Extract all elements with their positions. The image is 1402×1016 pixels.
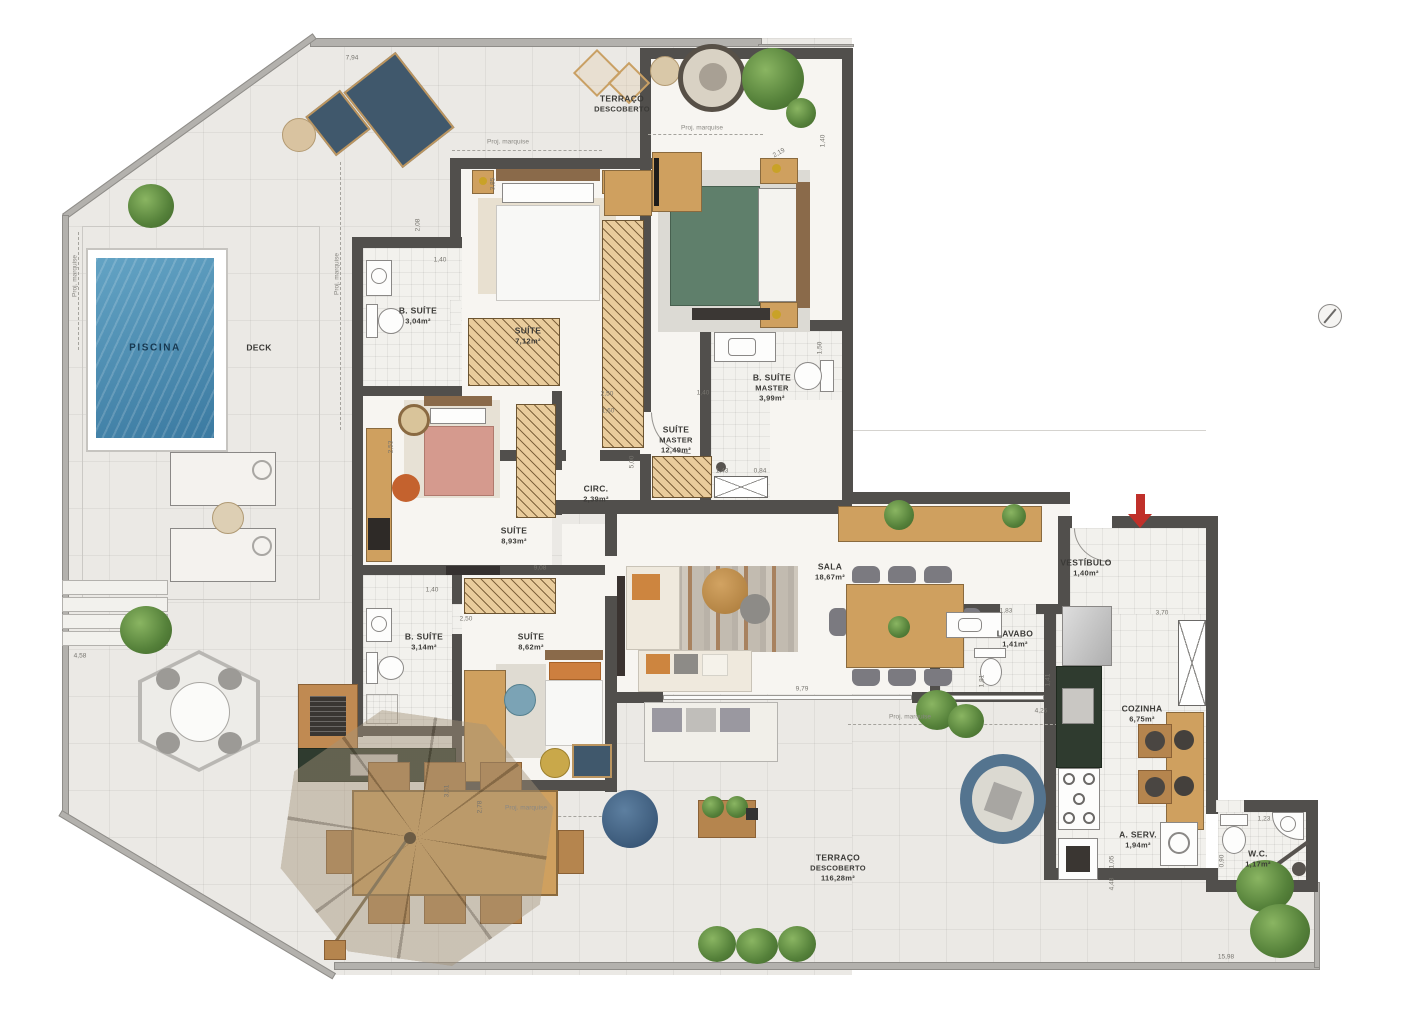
sala-glass-door xyxy=(663,695,912,700)
wall xyxy=(1044,604,1056,880)
burner-center xyxy=(1073,793,1085,805)
room-label: A. SERV.1,94m² xyxy=(1119,830,1157,851)
marquise-label: Proj. marquise xyxy=(889,714,931,721)
gazebo-chair xyxy=(156,732,180,754)
lamp xyxy=(479,177,487,185)
burner xyxy=(1083,812,1095,824)
pot xyxy=(746,808,758,820)
marquise-line xyxy=(452,150,602,151)
marquise-label: Proj. marquise xyxy=(681,125,723,132)
room-label: CIRC.2,39m² xyxy=(583,484,609,505)
room-label: W.C.1,17m² xyxy=(1245,849,1271,870)
dimension-label: 1,50 xyxy=(817,342,824,355)
entrance-arrow-icon xyxy=(1136,494,1145,514)
dimension-label: 3,85 xyxy=(490,178,497,191)
room-label: SUÍTE8,93m² xyxy=(501,526,528,547)
bed-headboard xyxy=(424,396,492,406)
sofa-cushion-orange xyxy=(632,574,660,600)
sala-glass-door-2 xyxy=(944,695,1044,700)
wardrobe xyxy=(652,456,712,498)
wall xyxy=(1206,516,1218,814)
bush xyxy=(778,926,816,962)
bed-headboard xyxy=(545,650,603,660)
wardrobe xyxy=(464,578,556,614)
door-gap-wc xyxy=(1216,800,1244,812)
wall xyxy=(1306,800,1318,892)
bed-bench xyxy=(692,308,770,320)
dimension-label: 1,41 xyxy=(1045,674,1052,687)
umbrella-pole xyxy=(404,832,416,844)
pouf xyxy=(650,56,680,86)
outdoor-cushion xyxy=(720,708,750,732)
toilet-tank xyxy=(366,652,378,684)
dining-chair xyxy=(888,566,916,583)
plant-small xyxy=(786,98,816,128)
fridge xyxy=(1062,606,1112,666)
marquise-label: Proj. marquise xyxy=(487,139,529,146)
dimension-label: 1,05 xyxy=(1109,856,1116,869)
plant xyxy=(948,704,984,738)
shower-head xyxy=(1292,862,1306,876)
room-label: SALA18,67m² xyxy=(815,562,845,583)
dining-chair xyxy=(852,566,880,583)
bush xyxy=(736,928,778,964)
gazebo-chair xyxy=(218,668,242,690)
door-gap-suite862 xyxy=(605,556,617,596)
gazebo-chair xyxy=(156,668,180,690)
tv xyxy=(654,158,659,206)
plant xyxy=(726,796,748,818)
info-panel: PENTHOUSE COM 4 SUÍTES 214,96 M2 DE ÁREA… xyxy=(955,30,1395,430)
toilet-tank xyxy=(366,304,378,338)
marquise-label: Proj. marquise xyxy=(505,805,547,812)
sofa-cushion-white xyxy=(702,654,728,676)
gazebo-chair xyxy=(218,732,242,754)
room-label: B. SUÍTE3,04m² xyxy=(399,306,437,327)
room-label: VESTÍBULO1,40m² xyxy=(1060,558,1111,579)
plant xyxy=(120,606,172,654)
toilet-tank xyxy=(820,360,834,392)
plant xyxy=(1002,504,1026,528)
door-gap-suite712 xyxy=(566,450,600,461)
wall xyxy=(842,48,853,504)
dresser xyxy=(604,170,652,216)
dimension-label: 4,48 xyxy=(1109,878,1116,891)
bed-headboard xyxy=(496,169,600,181)
marquise-line xyxy=(648,134,763,135)
room-label: LAVABO1,41m² xyxy=(997,629,1033,650)
dimension-label: 1,60 xyxy=(602,408,615,415)
bed-pillow xyxy=(502,183,594,203)
dining-chair xyxy=(888,669,916,686)
sink-basin xyxy=(371,616,387,632)
kitchen-sink xyxy=(1062,688,1094,724)
parapet-bottom xyxy=(334,962,1320,970)
room-label: DECK xyxy=(246,342,271,353)
island-plate xyxy=(1174,776,1194,796)
armchair-navy xyxy=(572,744,612,778)
console-dark xyxy=(446,566,500,575)
bush xyxy=(698,926,736,962)
room-label: TERRAÇODESCOBERTO116,28m² xyxy=(810,853,866,884)
toilet-tank xyxy=(1220,814,1248,826)
sofa-cushion-gray xyxy=(674,654,698,674)
lounge-wheel xyxy=(252,460,272,480)
room-label: COZINHA6,75m² xyxy=(1122,704,1163,725)
toilet-bowl xyxy=(378,656,404,680)
dimension-label: 1,43 xyxy=(716,468,729,475)
gazebo-table xyxy=(170,682,230,742)
stool-seat xyxy=(1145,777,1165,797)
beanbag-blue xyxy=(602,790,658,848)
desk-chair xyxy=(392,474,420,502)
dimension-label: 9,08 xyxy=(534,565,547,572)
bed-blanket xyxy=(424,426,494,496)
dimension-label: 1,83 xyxy=(1000,608,1013,615)
tv xyxy=(368,518,390,550)
corner-plant xyxy=(1250,904,1310,958)
dining-chair xyxy=(829,608,846,636)
hanging-chair-cushion xyxy=(699,63,727,91)
rattan-chair xyxy=(398,404,430,436)
dining-chair xyxy=(924,566,952,583)
bed-pillow-orange xyxy=(549,662,601,680)
lamp xyxy=(772,310,781,319)
page: { "panel": { "title": "PENTHOUSE", "subt… xyxy=(0,0,1402,1016)
lamp xyxy=(772,164,781,173)
dimension-label: 3,70 xyxy=(1156,610,1169,617)
toilet-bowl xyxy=(1222,826,1246,854)
room-label: SUÍTEMASTER12,49m² xyxy=(659,425,692,456)
marquise-label: Proj. marquise xyxy=(334,253,341,295)
pouf-gold xyxy=(540,748,570,778)
dimension-label: 2,53 xyxy=(388,441,395,454)
dimension-label: 1,23 xyxy=(1258,816,1271,823)
burner xyxy=(1063,812,1075,824)
parapet-right-lower xyxy=(1314,882,1320,968)
dining-chair xyxy=(852,669,880,686)
door-gap-bsuite304 xyxy=(450,300,461,332)
outdoor-cushion xyxy=(652,708,682,732)
dimension-label: 1,81 xyxy=(979,675,986,688)
wall xyxy=(352,237,462,248)
dimension-label: 4,58 xyxy=(74,653,87,660)
sink-basin xyxy=(728,338,756,356)
wall xyxy=(352,386,462,396)
bed-pillow xyxy=(430,408,486,424)
pouf-gray xyxy=(740,594,770,624)
dining-chair xyxy=(924,669,952,686)
desk-chair-blue xyxy=(504,684,536,716)
duct-shaft xyxy=(714,476,768,498)
parapet-top xyxy=(310,38,762,47)
outdoor-cushion xyxy=(686,708,716,732)
table-centerpiece xyxy=(888,616,910,638)
pouf xyxy=(282,118,316,152)
plant xyxy=(884,500,914,530)
sink-basin xyxy=(371,268,387,284)
wardrobe xyxy=(516,404,556,518)
burner xyxy=(1063,773,1075,785)
dimension-label: 3,51 xyxy=(444,785,451,798)
duct-shaft xyxy=(1178,620,1206,706)
parapet-top-right-line xyxy=(758,44,854,47)
umbrella-base xyxy=(324,940,346,960)
hall-edge-line xyxy=(852,430,1206,431)
tv-panel xyxy=(617,576,625,676)
dimension-label: 0,84 xyxy=(754,468,767,475)
wall xyxy=(842,492,1070,504)
wall xyxy=(352,237,363,737)
dimension-label: 7,94 xyxy=(346,55,359,62)
dresser xyxy=(652,152,702,212)
bed-headboard xyxy=(796,182,810,308)
stool-seat xyxy=(1145,731,1165,751)
dimension-label: 1,40 xyxy=(434,257,447,264)
dimension-label: 2,50 xyxy=(601,391,614,398)
washer-door xyxy=(1168,832,1190,854)
bed-pillows xyxy=(758,188,798,302)
sofa-cushion-orange xyxy=(646,654,670,674)
island-plate xyxy=(1174,730,1194,750)
dimension-label: 15,98 xyxy=(1218,954,1234,961)
bed-duvet xyxy=(496,205,600,301)
dimension-label: 1,40 xyxy=(697,390,710,397)
outdoor-chair xyxy=(558,830,584,874)
sink-basin xyxy=(958,618,982,632)
dimension-label: 4,26 xyxy=(1035,708,1048,715)
wall xyxy=(450,158,652,169)
floor-circ-south xyxy=(562,524,605,565)
parapet-left xyxy=(62,215,69,815)
dimension-label: 9,79 xyxy=(796,686,809,693)
step xyxy=(62,580,168,595)
room-label: SUÍTE8,62m² xyxy=(518,632,545,653)
marquise-line xyxy=(340,162,341,430)
lounge-wheel xyxy=(252,536,272,556)
toilet-bowl xyxy=(794,362,822,390)
room-label: PISCINA xyxy=(129,342,181,355)
dimension-label: 2,50 xyxy=(460,616,473,623)
dimension-label: 2,78 xyxy=(477,801,484,814)
side-table xyxy=(212,502,244,534)
dimension-label: 1,40 xyxy=(820,135,827,148)
sink-basin xyxy=(1280,816,1296,832)
room-label: SUÍTE7,12m² xyxy=(515,326,542,347)
plant xyxy=(702,796,724,818)
wall xyxy=(450,158,461,248)
bbq-grill xyxy=(310,696,346,736)
toilet-tank xyxy=(974,648,1006,658)
marquise-label: Proj. marquise xyxy=(72,255,79,297)
dimension-label: 1,40 xyxy=(426,587,439,594)
oven-door xyxy=(1066,846,1090,872)
room-label: B. SUÍTE3,14m² xyxy=(405,632,443,653)
burner xyxy=(1083,773,1095,785)
dimension-label: 5,00 xyxy=(629,456,636,469)
plant xyxy=(128,184,174,228)
room-label: TERRAÇODESCOBERTO xyxy=(594,94,650,115)
dimension-label: 0,90 xyxy=(1219,855,1226,868)
bed-duvet xyxy=(545,680,603,746)
room-label: B. SUÍTEMASTER3,99m² xyxy=(753,373,791,404)
entrance-arrow-head xyxy=(1128,514,1152,528)
dimension-label: 2,08 xyxy=(415,219,422,232)
